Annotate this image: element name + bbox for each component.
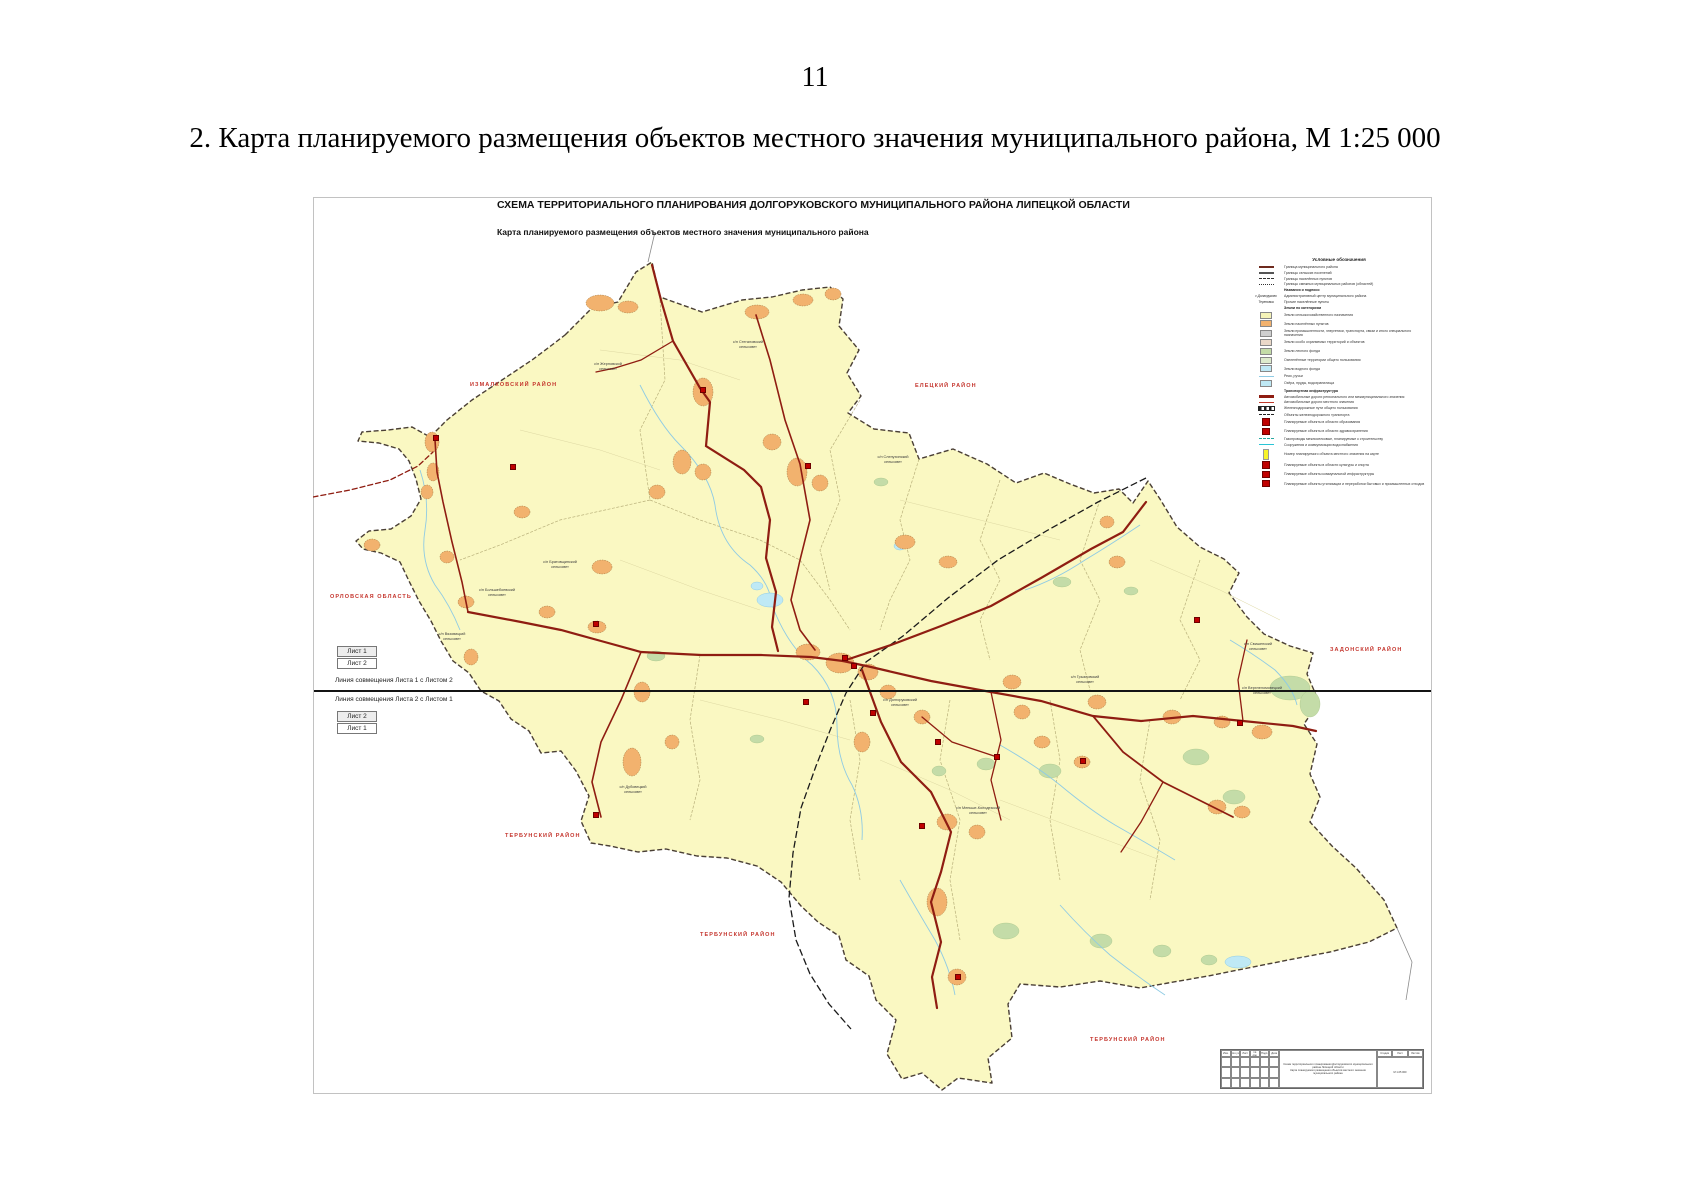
legend-swatch-band — [1259, 266, 1274, 268]
legend-swatch-none — [1259, 290, 1274, 291]
legend-swatch-fill — [1260, 339, 1272, 346]
legend-item: Земли промышленности, энергетики, трансп… — [1248, 329, 1430, 337]
legend-swatch-bluefill — [1260, 365, 1272, 372]
legend-item-label: Автомобильные дороги местного значения — [1284, 400, 1430, 404]
stamp-empty-cell — [1231, 1057, 1241, 1067]
legend-item: Земли сельскохозяйственного назначения — [1248, 312, 1430, 319]
legend-item-label: Земли промышленности, энергетики, трансп… — [1284, 329, 1430, 337]
legend-item-label: Реки, ручьи — [1284, 374, 1430, 378]
sheet-title: СХЕМА ТЕРРИТОРИАЛЬНОГО ПЛАНИРОВАНИЯ ДОЛГ… — [497, 199, 1130, 211]
legend-item: ТереховкаПрочие населённые пункты — [1248, 300, 1430, 304]
stamp-empty-cell — [1240, 1078, 1250, 1088]
sheet-index-box-1: Лист 1 — [337, 646, 377, 657]
legend-swatch-text: с.Долгоруково — [1255, 294, 1276, 298]
stamp-empty-cell — [1260, 1067, 1270, 1077]
legend-item-label: Железнодорожные пути общего пользования — [1284, 406, 1430, 410]
legend-item-label: Прочие населённые пункты — [1284, 300, 1430, 304]
legend-items: Граница муниципального районаГраницы сел… — [1248, 265, 1430, 487]
stamp-empty-cell — [1231, 1078, 1241, 1088]
legend-swatch-bluefill — [1260, 380, 1272, 387]
legend-item-label: Планируемые объекты в области культуры и… — [1284, 463, 1430, 467]
stamp-title: Схема территориального планирования Долг… — [1279, 1050, 1377, 1088]
legend-swatch-fill — [1260, 320, 1272, 327]
legend-item: Планируемые объекты в области образовани… — [1248, 418, 1430, 426]
legend-item: Границы смежных муниципальных районов (о… — [1248, 282, 1430, 286]
stamp-header-cell: Стадия — [1377, 1050, 1392, 1057]
legend-item-label: Планируемые объекты утилизации и перераб… — [1284, 482, 1430, 486]
legend-item-label: Озеленённые территории общего пользовани… — [1284, 358, 1430, 362]
legend-swatch-square — [1262, 480, 1270, 488]
legend-item-label: Названия и подписи — [1284, 288, 1430, 292]
legend-swatch-line — [1259, 402, 1274, 403]
legend-item: Планируемые объекты в области культуры и… — [1248, 461, 1430, 469]
stamp-header-cell: Изм. — [1221, 1050, 1231, 1057]
stamp-empty-cell — [1231, 1067, 1241, 1077]
legend-swatch-fill — [1260, 312, 1272, 319]
legend-swatch-square — [1262, 471, 1270, 479]
legend-item-label: Граница муниципального района — [1284, 265, 1430, 269]
legend-item-label: Земли особо охраняемых территорий и объе… — [1284, 340, 1430, 344]
legend-swatch-none — [1259, 307, 1274, 308]
legend-item-label: Административный центр муниципального ра… — [1284, 294, 1430, 298]
legend-item: Планируемые объекты коммунальной инфраст… — [1248, 471, 1430, 479]
legend-item: Озёра, пруды, водохранилища — [1248, 380, 1430, 387]
legend-swatch-tag — [1263, 449, 1269, 460]
stamp-header-cell: Листов — [1408, 1050, 1423, 1057]
stamp-empty-cell — [1221, 1067, 1231, 1077]
stamp-header-cell: Лист — [1392, 1050, 1407, 1057]
legend-item: Земли водного фонда — [1248, 365, 1430, 372]
legend-swatch-line — [1259, 376, 1274, 377]
legend-item-label: Автомобильные дороги регионального или м… — [1284, 395, 1430, 399]
stamp-empty-cell — [1269, 1078, 1279, 1088]
legend-item-label: Границы смежных муниципальных районов (о… — [1284, 282, 1430, 286]
legend-item: Газопроводы межпоселковые, планируемые к… — [1248, 437, 1430, 441]
legend-item: Автомобильные дороги регионального или м… — [1248, 395, 1430, 399]
legend-title: Условные обозначения — [1248, 257, 1430, 262]
stamp-scale: М 1:25 000 — [1377, 1057, 1423, 1088]
legend-item: Автомобильные дороги местного значения — [1248, 400, 1430, 404]
legend-item: Реки, ручьи — [1248, 374, 1430, 378]
stamp-title-line: Карта планируемого размещения объектов м… — [1281, 1069, 1376, 1075]
stamp-empty-cell — [1250, 1057, 1260, 1067]
legend-swatch-line — [1259, 444, 1274, 445]
map-legend: Условные обозначения Граница муниципальн… — [1248, 257, 1430, 489]
legend-swatch-fill — [1260, 330, 1272, 337]
legend-item-label: Планируемые объекты в области здравоохра… — [1284, 429, 1430, 433]
legend-item-label: Границы сельских поселений — [1284, 271, 1430, 275]
legend-item-label: Земли по категориям — [1284, 306, 1430, 310]
legend-item-label: Земли лесного фонда — [1284, 349, 1430, 353]
legend-item: Земли особо охраняемых территорий и объе… — [1248, 339, 1430, 346]
join-label-2: Линия совмещения Листа 2 с Листом 1 — [335, 696, 453, 703]
legend-item: Названия и подписи — [1248, 288, 1430, 292]
legend-item: с.ДолгоруковоАдминистративный центр муни… — [1248, 294, 1430, 298]
stamp-empty-cell — [1269, 1057, 1279, 1067]
legend-item: Сооружения и коммуникации водоснабжения — [1248, 443, 1430, 447]
legend-swatch-dashdot — [1259, 284, 1274, 285]
legend-item: Земли по категориям — [1248, 306, 1430, 310]
legend-item-label: Планируемые объекты коммунальной инфраст… — [1284, 472, 1430, 476]
legend-item-label: Сооружения и коммуникации водоснабжения — [1284, 443, 1430, 447]
stamp-header-cell: Дата — [1269, 1050, 1279, 1057]
sheet-index-box-2: Лист 2 — [337, 658, 377, 669]
stamp-right: СтадияЛистЛистовМ 1:25 000 — [1377, 1050, 1423, 1088]
legend-item: Земли лесного фонда — [1248, 348, 1430, 355]
legend-item: Земли населённых пунктов — [1248, 320, 1430, 327]
legend-item-label: Земли населённых пунктов — [1284, 322, 1430, 326]
legend-swatch-text: Тереховка — [1258, 300, 1273, 304]
legend-item: Номер планируемого объекта местного знач… — [1248, 449, 1430, 460]
legend-swatch-dash — [1259, 414, 1274, 415]
legend-item: Объекты железнодорожного транспорта — [1248, 413, 1430, 417]
page-number: 11 — [0, 62, 1630, 94]
title-block: Изм.Кол.уч.Лист№ док.Подп.ДатаСхема терр… — [1220, 1049, 1424, 1089]
legend-swatch-band — [1259, 272, 1274, 274]
stamp-empty-cell — [1221, 1057, 1231, 1067]
legend-item-label: Номер планируемого объекта местного знач… — [1284, 452, 1430, 456]
stamp-empty-cell — [1240, 1057, 1250, 1067]
legend-swatch-square — [1262, 428, 1270, 436]
legend-item-label: Газопроводы межпоселковые, планируемые к… — [1284, 437, 1430, 441]
legend-swatch-band — [1259, 395, 1274, 397]
figure-caption: 2. Карта планируемого размещения объекто… — [0, 122, 1630, 155]
legend-item: Транспортная инфраструктура — [1248, 389, 1430, 393]
stamp-empty-cell — [1260, 1078, 1270, 1088]
legend-swatch-fill — [1260, 348, 1272, 355]
legend-item-label: Границы населённых пунктов — [1284, 277, 1430, 281]
legend-item: Железнодорожные пути общего пользования — [1248, 406, 1430, 411]
sheet-subtitle: Карта планируемого размещения объектов м… — [497, 227, 869, 237]
legend-swatch-rail — [1258, 406, 1275, 411]
stamp-header-cell: Кол.уч. — [1231, 1050, 1241, 1057]
stamp-empty-cell — [1240, 1067, 1250, 1077]
stamp-empty-cell — [1250, 1067, 1260, 1077]
stamp-header-cell: Лист — [1240, 1050, 1250, 1057]
legend-item: Планируемые объекты утилизации и перераб… — [1248, 480, 1430, 488]
document-page: { "page": { "number": "11", "caption": "… — [0, 0, 1697, 1200]
legend-item-label: Транспортная инфраструктура — [1284, 389, 1430, 393]
legend-swatch-dash — [1259, 278, 1274, 279]
legend-swatch-square — [1262, 418, 1270, 426]
stamp-left: Изм.Кол.уч.Лист№ док.Подп.Дата — [1221, 1050, 1279, 1088]
sheet-index-box-3: Лист 2 — [337, 711, 377, 722]
stamp-header-cell: Подп. — [1260, 1050, 1270, 1057]
legend-item: Планируемые объекты в области здравоохра… — [1248, 428, 1430, 436]
legend-item-label: Объекты железнодорожного транспорта — [1284, 413, 1430, 417]
join-label-1: Линия совмещения Листа 1 с Листом 2 — [335, 677, 453, 684]
legend-item: Границы сельских поселений — [1248, 271, 1430, 275]
sheet-index-box-4: Лист 1 — [337, 723, 377, 734]
legend-item-label: Озёра, пруды, водохранилища — [1284, 381, 1430, 385]
stamp-empty-cell — [1221, 1078, 1231, 1088]
stamp-empty-cell — [1260, 1057, 1270, 1067]
legend-item: Озеленённые территории общего пользовани… — [1248, 357, 1430, 364]
legend-swatch-none — [1259, 390, 1274, 391]
sheet-join-line — [314, 690, 1431, 692]
legend-item-label: Земли сельскохозяйственного назначения — [1284, 313, 1430, 317]
legend-item: Граница муниципального района — [1248, 265, 1430, 269]
legend-item-label: Земли водного фонда — [1284, 367, 1430, 371]
legend-swatch-fill — [1260, 357, 1272, 364]
legend-item: Границы населённых пунктов — [1248, 277, 1430, 281]
legend-item-label: Планируемые объекты в области образовани… — [1284, 420, 1430, 424]
stamp-empty-cell — [1250, 1078, 1260, 1088]
legend-swatch-square — [1262, 461, 1270, 469]
stamp-header-cell: № док. — [1250, 1050, 1260, 1057]
stamp-empty-cell — [1269, 1067, 1279, 1077]
legend-swatch-dash — [1259, 438, 1274, 439]
